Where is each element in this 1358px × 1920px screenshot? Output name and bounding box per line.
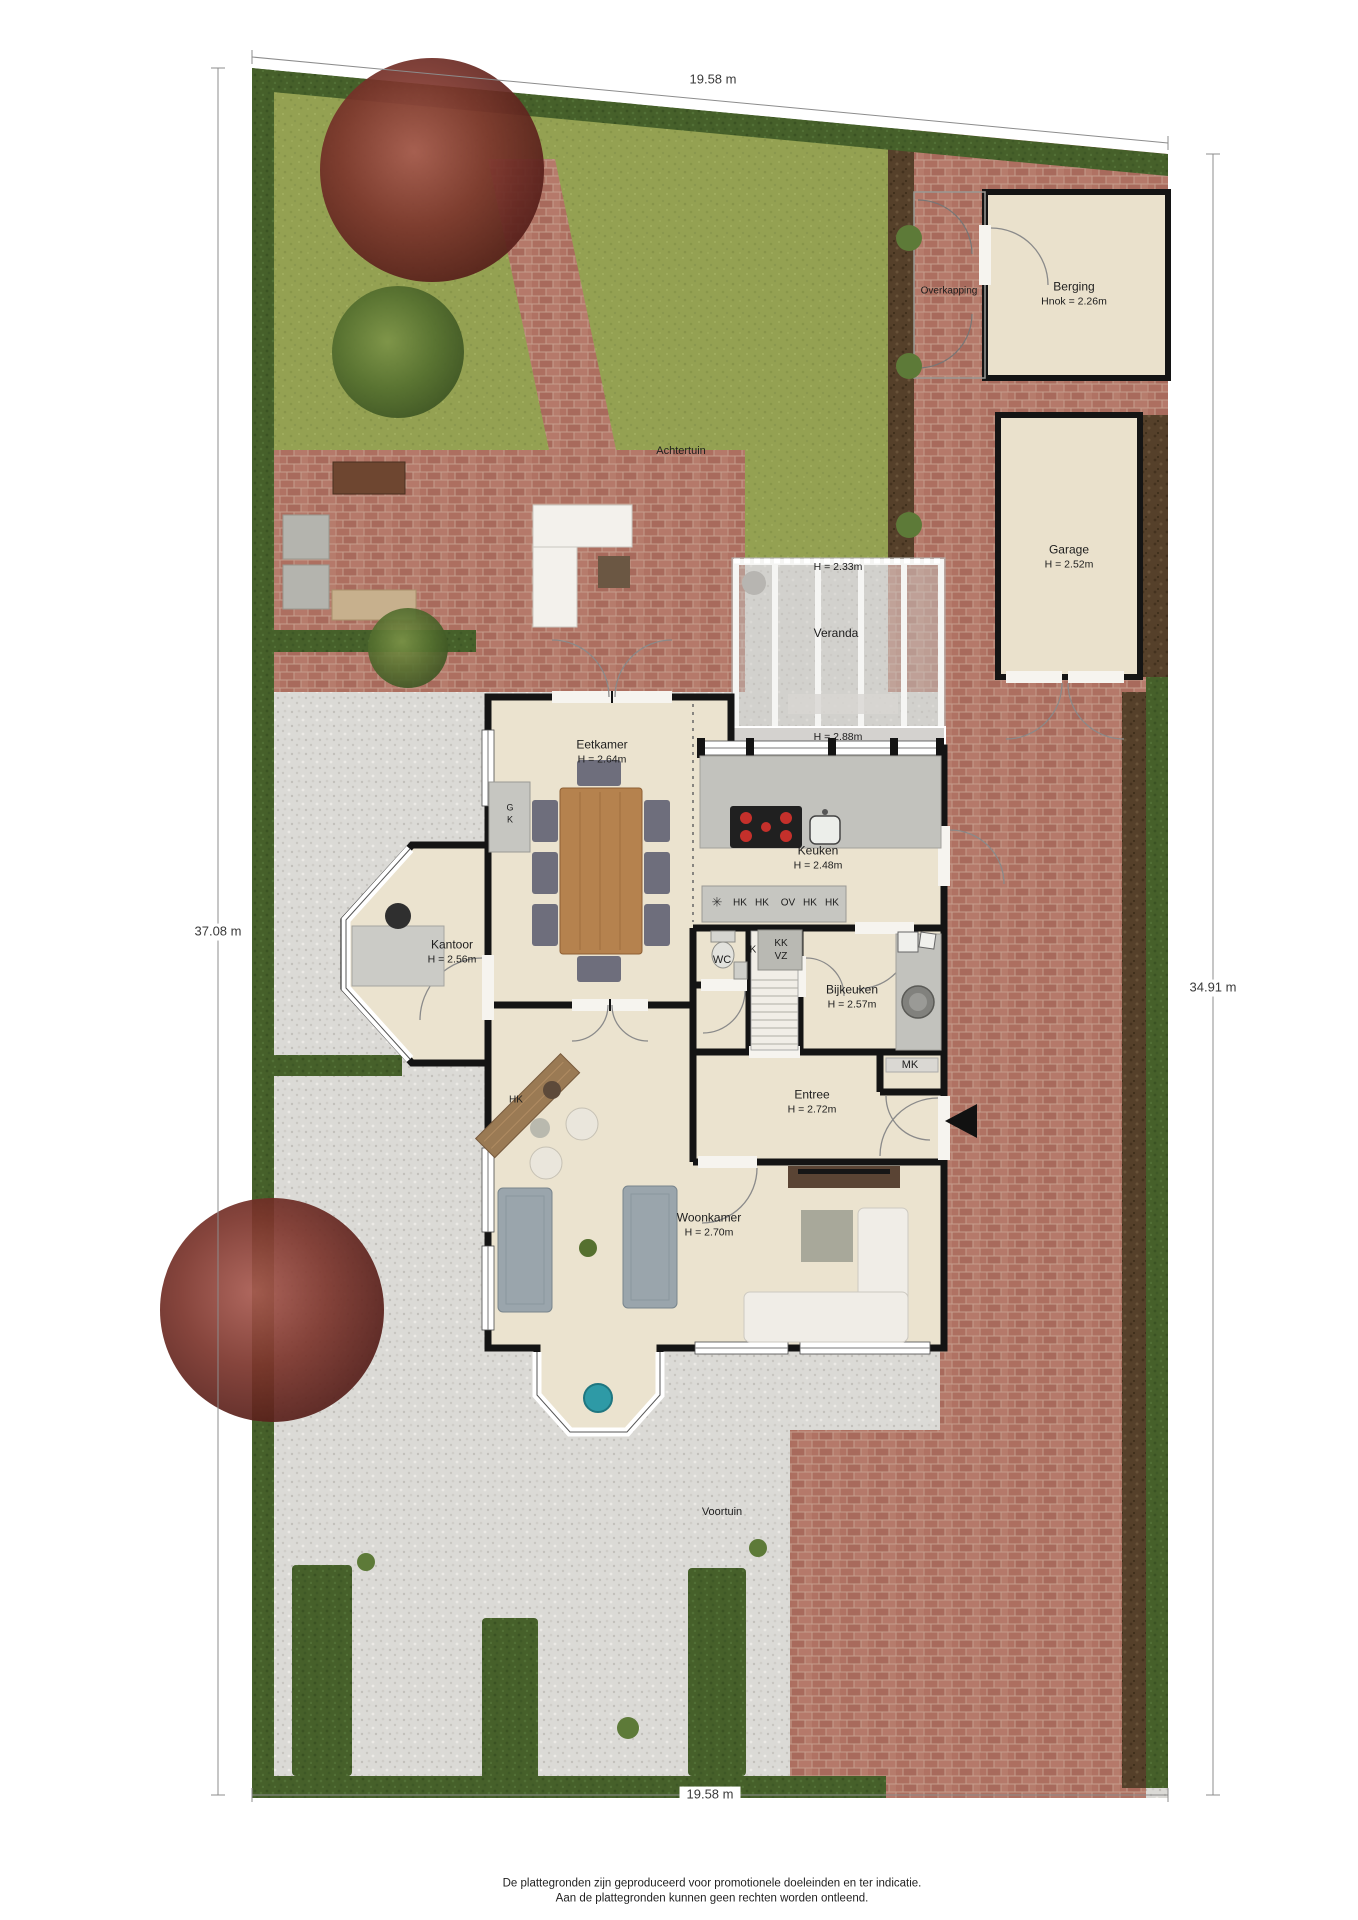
bijkeuken-name: Bijkeuken <box>826 982 878 998</box>
keuken-label: Keuken H = 2.48m <box>794 843 843 872</box>
veranda-height-upper: H = 2.33m <box>814 561 863 575</box>
bush-1 <box>896 225 922 251</box>
driveway-front <box>790 1430 940 1798</box>
kantoor-height: H = 2.56m <box>428 953 477 967</box>
g-label: G <box>506 802 513 814</box>
mk-label: MK <box>902 1058 919 1072</box>
veranda-height-lower: H = 2.88m <box>814 731 863 745</box>
hedge-left <box>252 68 274 1798</box>
dining-table <box>560 788 642 954</box>
red-tree-top <box>320 58 544 282</box>
outdoor-sofa-a <box>533 505 632 547</box>
hall-cabinet-label: HK <box>509 1094 523 1107</box>
plant <box>579 1239 597 1257</box>
bbq <box>333 462 405 494</box>
bay-chair <box>584 1384 612 1412</box>
red-tree-bottom <box>160 1198 384 1422</box>
faucet <box>822 809 828 815</box>
kantoor-name: Kantoor <box>428 937 477 953</box>
outdoor-sofa-b <box>533 547 577 627</box>
appliance-hk-2: HK <box>755 897 769 910</box>
kantoor-label: Kantoor H = 2.56m <box>428 937 477 966</box>
eetkamer-name: Eetkamer <box>576 737 627 753</box>
overkapping-label: Overkapping <box>921 285 978 298</box>
hedge-block-1 <box>292 1565 352 1776</box>
dimension-right: 34.91 m <box>1183 980 1244 997</box>
hedge-block-2 <box>482 1618 538 1788</box>
appliance-ov: OV <box>781 897 795 910</box>
bush-5 <box>749 1539 767 1557</box>
entree-name: Entree <box>788 1087 837 1103</box>
ventilation-icon: ✳ <box>712 895 723 912</box>
toilet-tank <box>711 931 735 942</box>
berging-height: Hnok = 2.26m <box>1041 295 1107 309</box>
vz-label: VZ <box>774 950 787 963</box>
appliance-hk-4: HK <box>825 897 839 910</box>
keuken-height: H = 2.48m <box>794 859 843 873</box>
kitchen-sink <box>810 816 840 844</box>
dimension-bottom: 19.58 m <box>680 1787 741 1804</box>
border-bed-right <box>1122 692 1146 1788</box>
floor-mat <box>801 1210 853 1262</box>
armchair-1 <box>566 1108 598 1140</box>
utility-tray <box>919 932 936 949</box>
disclaimer-line-2: Aan de plattegronden kunnen geen rechten… <box>556 1892 869 1907</box>
gk-label: G K <box>506 802 513 825</box>
entree-label: Entree H = 2.72m <box>788 1087 837 1116</box>
appliance-hk-1: HK <box>733 897 747 910</box>
woonkamer-label: Woonkamer H = 2.70m <box>677 1210 741 1239</box>
disclaimer-line-1: De plattegronden zijn geproduceerd voor … <box>503 1877 922 1892</box>
appliance-hk-3: HK <box>803 897 817 910</box>
woonkamer-height: H = 2.70m <box>677 1226 741 1240</box>
back-garden-label: Achtertuin <box>656 444 706 458</box>
entree-height: H = 2.72m <box>788 1103 837 1117</box>
white-sofa-horizontal <box>744 1292 908 1342</box>
border-bed-left <box>888 136 914 560</box>
hedge-right <box>1146 677 1168 1788</box>
pouf <box>530 1118 550 1138</box>
side-table-round <box>543 1081 561 1099</box>
bush-6 <box>357 1553 375 1571</box>
bush-4 <box>617 1717 639 1739</box>
bijkeuken-label: Bijkeuken H = 2.57m <box>826 982 878 1011</box>
kk-vz-label: KK VZ <box>774 937 787 963</box>
driveway <box>940 692 1146 1798</box>
border-bed-garage <box>1140 415 1168 677</box>
wc-label: WC <box>713 953 731 967</box>
bush-3 <box>896 512 922 538</box>
eetkamer-label: Eetkamer H = 2.64m <box>576 737 627 766</box>
woonkamer-name: Woonkamer <box>677 1210 741 1226</box>
garage-height: H = 2.52m <box>1045 558 1094 572</box>
hedge-side <box>268 1055 402 1076</box>
office-chair <box>385 903 411 929</box>
berging-name: Berging <box>1041 279 1107 295</box>
garage-name: Garage <box>1045 542 1094 558</box>
bush-2 <box>896 353 922 379</box>
stepping-stone <box>742 571 766 595</box>
green-tree <box>332 286 464 418</box>
kk-label: KK <box>774 937 787 950</box>
garage-label: Garage H = 2.52m <box>1045 542 1094 571</box>
bijkeuken-height: H = 2.57m <box>826 998 878 1012</box>
veranda-name: Veranda <box>814 626 859 642</box>
g-k-label: K <box>506 814 513 826</box>
front-garden-label: Voortuin <box>702 1505 742 1519</box>
hedge-block-3 <box>688 1568 746 1776</box>
floor-plan-canvas <box>0 0 1358 1920</box>
veranda-table <box>788 694 898 714</box>
keuken-name: Keuken <box>794 843 843 859</box>
lounge-chair-2 <box>283 565 329 609</box>
lounge-chair-1 <box>283 515 329 559</box>
floor-plan-page: 19.58 m 19.58 m 37.08 m 34.91 m Achtertu… <box>0 0 1358 1920</box>
armchair-2 <box>530 1147 562 1179</box>
tv <box>798 1169 890 1174</box>
dimension-left: 37.08 m <box>188 924 249 941</box>
eetkamer-height: H = 2.64m <box>576 753 627 767</box>
k-closet-label: K <box>750 944 757 957</box>
outdoor-table <box>598 556 630 588</box>
shrub <box>368 608 448 688</box>
utility-basin <box>898 932 918 952</box>
wc-sink <box>734 962 747 979</box>
berging-label: Berging Hnok = 2.26m <box>1041 279 1107 308</box>
dimension-top: 19.58 m <box>683 72 744 89</box>
